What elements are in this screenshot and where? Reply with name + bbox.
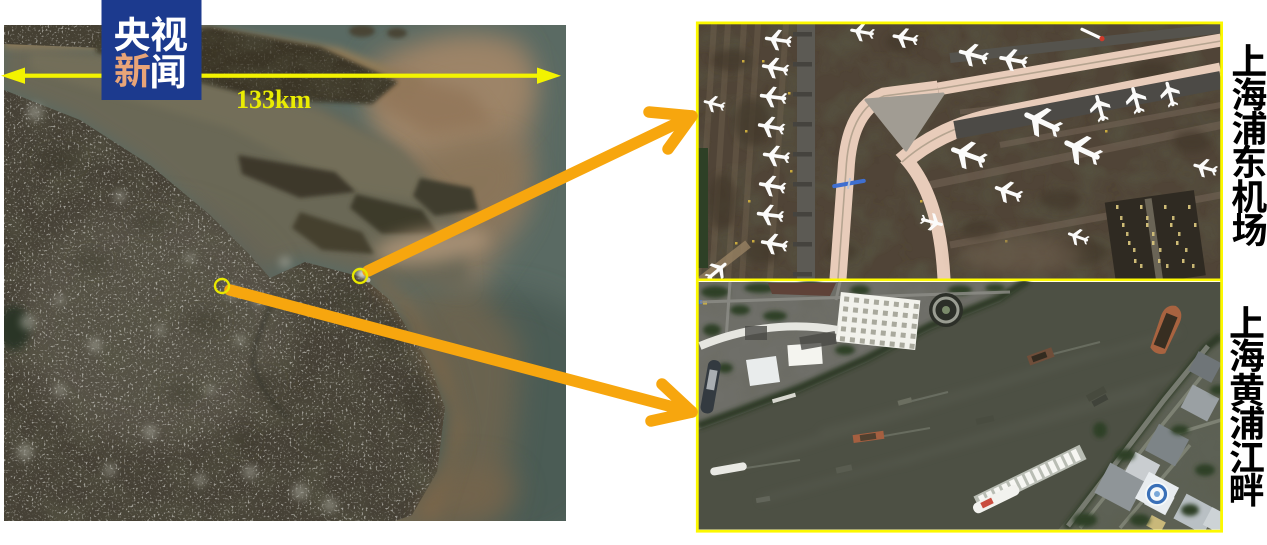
svg-text:133km: 133km bbox=[236, 85, 311, 114]
